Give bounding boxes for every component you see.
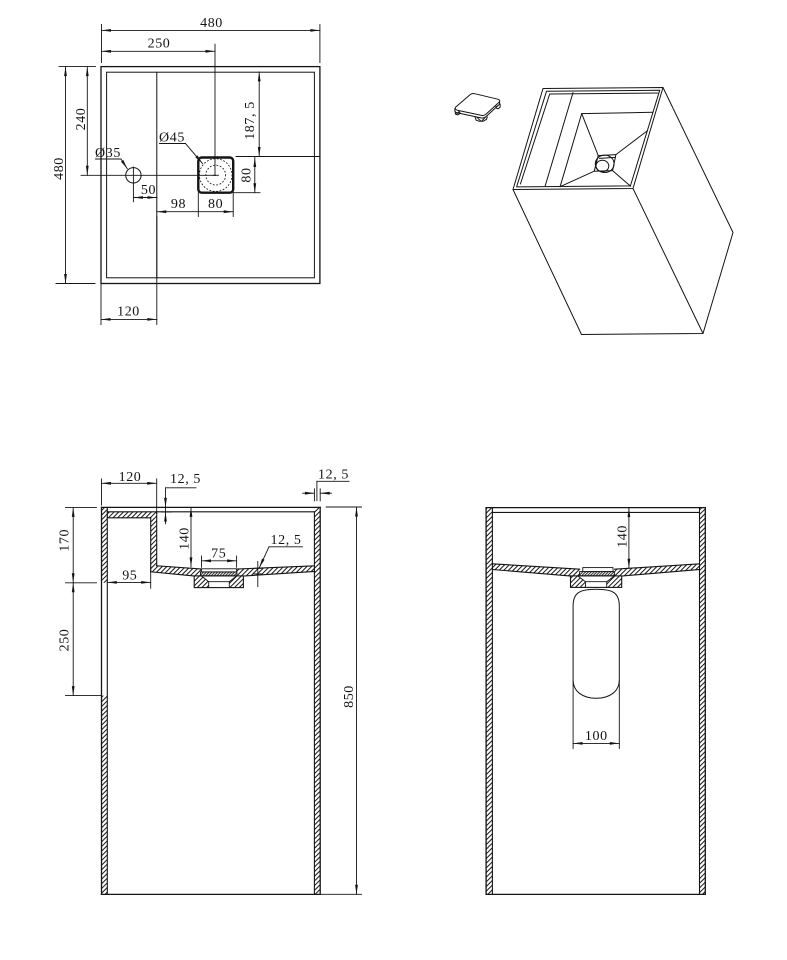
svg-text:140: 140 — [615, 525, 630, 548]
svg-text:12, 5: 12, 5 — [271, 533, 302, 548]
svg-text:170: 170 — [58, 529, 73, 552]
svg-text:100: 100 — [585, 729, 608, 744]
svg-text:50: 50 — [141, 183, 156, 198]
svg-text:80: 80 — [208, 197, 223, 212]
svg-text:75: 75 — [211, 546, 226, 561]
svg-text:240: 240 — [74, 108, 89, 131]
svg-text:250: 250 — [148, 37, 171, 52]
svg-text:12, 5: 12, 5 — [318, 467, 349, 482]
svg-text:850: 850 — [342, 685, 357, 708]
svg-text:98: 98 — [171, 197, 186, 212]
svg-text:80: 80 — [240, 167, 255, 182]
svg-text:120: 120 — [119, 470, 142, 485]
svg-text:140: 140 — [178, 527, 193, 550]
svg-text:95: 95 — [122, 568, 137, 583]
svg-text:12, 5: 12, 5 — [170, 472, 201, 487]
svg-text:480: 480 — [200, 16, 223, 31]
svg-text:250: 250 — [58, 629, 73, 652]
svg-text:187, 5: 187, 5 — [243, 101, 258, 140]
svg-text:120: 120 — [117, 305, 140, 320]
svg-text:480: 480 — [52, 157, 67, 180]
